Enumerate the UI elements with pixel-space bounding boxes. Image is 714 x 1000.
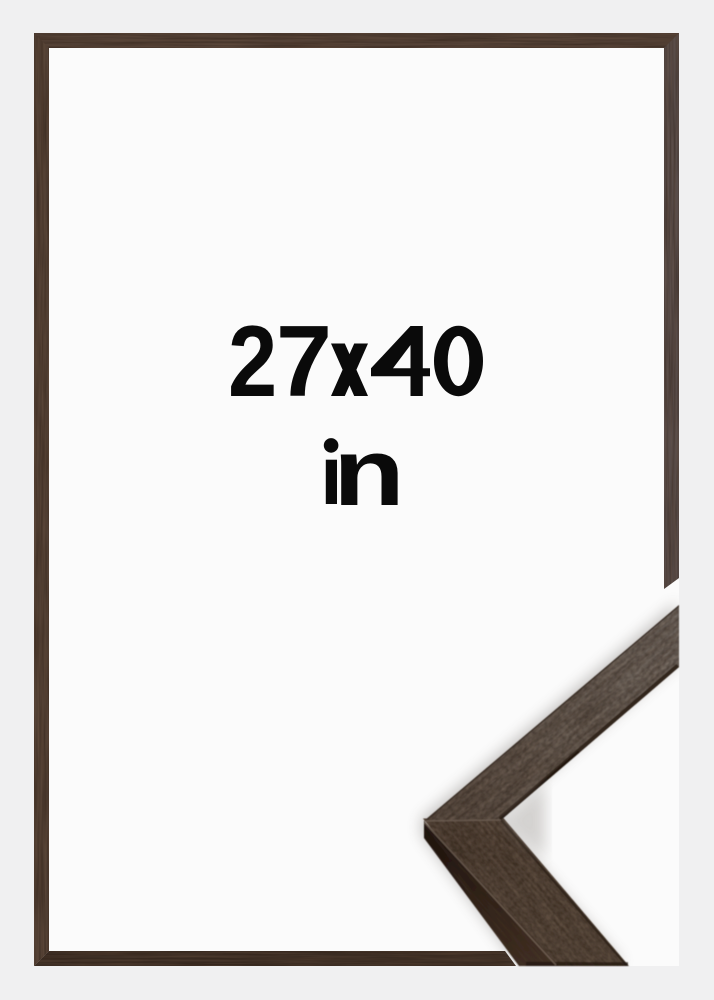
svg-text:7: 7 [276,306,332,418]
svg-text:2: 2 [228,306,277,418]
svg-text:n: n [333,419,405,526]
